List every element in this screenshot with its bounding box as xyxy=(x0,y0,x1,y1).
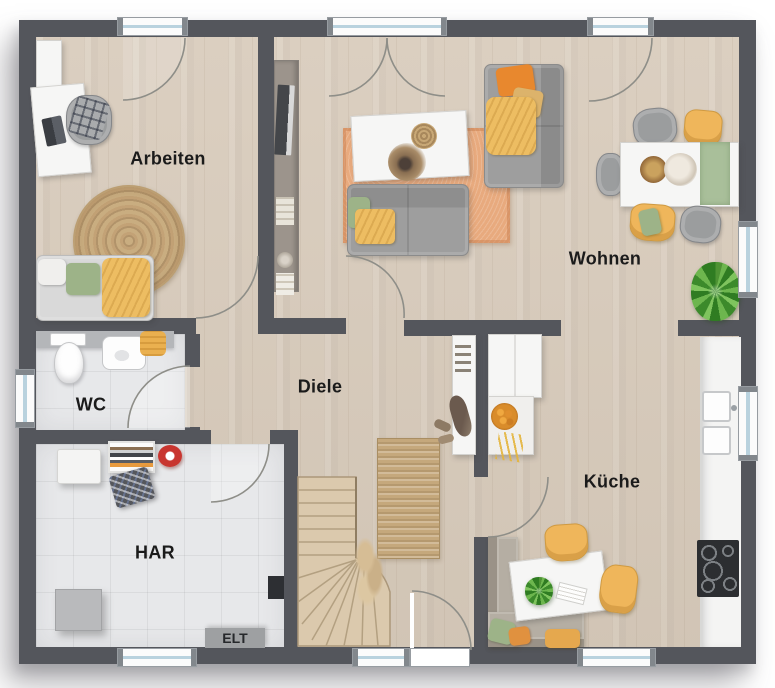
elt-panel: ELT xyxy=(205,628,265,648)
table-runner-green xyxy=(700,142,730,205)
books-stack-2 xyxy=(276,273,294,295)
living-window-east xyxy=(738,221,758,298)
kitchen-counter xyxy=(700,337,741,647)
shelf-bowl xyxy=(277,252,293,268)
dried-plant-decor xyxy=(388,143,426,181)
daybed-throw-yellow xyxy=(102,258,150,317)
wall-hall-kitchen-lower xyxy=(474,537,488,647)
towel-yellow xyxy=(140,331,166,356)
drying-rack xyxy=(108,441,155,473)
daybed-pillow-green xyxy=(66,263,100,295)
chimney-block xyxy=(268,576,284,599)
room-label-diele: Diele xyxy=(298,377,343,398)
kitchen-window-east xyxy=(738,386,758,461)
sink-basin-1 xyxy=(702,391,731,422)
coat-hooks xyxy=(455,340,471,372)
floor-plan-canvas: ELT Arbeiten Wohnen Diele WC HAR Küche xyxy=(0,0,775,688)
fruit-bowl xyxy=(491,403,518,430)
pampas-grass-decor xyxy=(350,535,388,607)
wall-hall-kitchen-upper xyxy=(474,336,488,477)
kitchen-chair-yellow-1 xyxy=(544,523,589,563)
sink-basin-2 xyxy=(702,426,731,455)
room-label-wc: WC xyxy=(76,395,107,416)
living-single-door xyxy=(587,17,654,36)
washing-machine xyxy=(57,449,101,484)
sink-faucet xyxy=(731,405,737,411)
office-window xyxy=(117,17,188,36)
wall-living-south-left xyxy=(258,318,346,334)
toilet-bowl xyxy=(54,342,84,384)
books-stack xyxy=(276,197,294,225)
wc-window xyxy=(15,369,35,428)
sofa2-pillow-yellow xyxy=(355,209,395,244)
storage-box xyxy=(55,589,102,631)
bench-pillow-yellow xyxy=(545,629,580,648)
room-label-wohnen: Wohnen xyxy=(569,249,641,270)
wall-living-kitchen-east xyxy=(678,320,739,336)
house-outline: ELT Arbeiten Wohnen Diele WC HAR Küche xyxy=(19,20,756,664)
entrance-door xyxy=(410,648,470,667)
room-label-arbeiten: Arbeiten xyxy=(130,149,205,170)
living-plant xyxy=(691,262,740,321)
kitchen-chair-yellow-2 xyxy=(597,563,640,615)
cooktop xyxy=(697,540,739,597)
har-window xyxy=(117,648,197,667)
kitchen-window-south xyxy=(577,648,656,667)
entrance-sidelight xyxy=(352,648,410,667)
flower-sprigs-yellow xyxy=(495,431,525,462)
kitchen-tall-cabinet xyxy=(488,334,542,398)
kitchen-table-plant xyxy=(525,577,553,605)
dining-bowl xyxy=(640,156,667,183)
dining-flowers-white xyxy=(664,153,697,186)
room-label-kueche: Küche xyxy=(584,472,641,493)
daybed-pillow-white xyxy=(38,259,66,285)
bench-pillow-orange xyxy=(508,626,531,647)
room-label-har: HAR xyxy=(135,543,175,564)
elt-label: ELT xyxy=(222,630,247,646)
wall-har-east xyxy=(284,430,298,647)
sofa-throw-yellow xyxy=(486,97,536,155)
terrace-double-door xyxy=(327,17,447,36)
red-bucket xyxy=(158,445,182,467)
wall-wc-east-upper xyxy=(185,334,200,367)
wall-office-living-divider xyxy=(258,37,274,334)
